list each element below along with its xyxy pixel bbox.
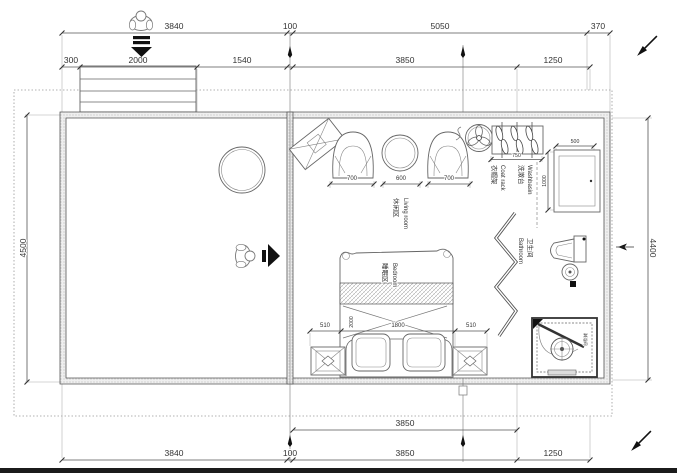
dim-b2-1250: 1250 bbox=[544, 448, 563, 458]
bedroom-label-zh: 睡眠区 bbox=[381, 263, 389, 283]
floor-drain-icon bbox=[562, 264, 578, 280]
entry-marker bbox=[129, 11, 152, 57]
page-bottom-edge bbox=[0, 468, 677, 473]
dim-bed-510-right: 510 bbox=[466, 323, 477, 329]
dim-top-3840: 3840 bbox=[165, 21, 184, 31]
dim-bed-510-left: 510 bbox=[320, 323, 331, 329]
person-icon bbox=[129, 11, 152, 31]
person-icon bbox=[236, 244, 256, 267]
bathroom-label-zh: 卫生间 bbox=[526, 238, 535, 258]
left-room bbox=[219, 147, 280, 268]
floor-plan-canvas: 3840 100 5050 370 300 2000 1540 3850 125… bbox=[0, 0, 677, 473]
dim-top2-1540: 1540 bbox=[233, 55, 252, 65]
dim-b1-3850: 3850 bbox=[396, 418, 415, 428]
coffee-table-icon bbox=[382, 135, 418, 171]
washbasin-icon bbox=[554, 150, 600, 212]
section-lines bbox=[288, 33, 467, 462]
dim-coatrack-750: 750 bbox=[512, 153, 521, 159]
toilet-icon bbox=[551, 236, 587, 262]
pen-icon bbox=[629, 429, 653, 453]
arrow-right-icon bbox=[262, 244, 280, 267]
dim-b2-100: 100 bbox=[283, 448, 297, 458]
section-marker-icon bbox=[288, 46, 292, 58]
armchair-icon bbox=[333, 132, 374, 178]
dim-table-600: 600 bbox=[396, 176, 407, 182]
dim-top-5050: 5050 bbox=[431, 21, 450, 31]
dim-top-100: 100 bbox=[283, 21, 297, 31]
armchair-icon bbox=[428, 132, 469, 178]
dim-b2-3850: 3850 bbox=[396, 448, 415, 458]
dim-chair-700: 700 bbox=[347, 176, 358, 182]
dimensions-bottom: 3850 3840 100 3850 1250 bbox=[60, 418, 593, 463]
section-marker-icon bbox=[461, 46, 465, 58]
coat-rack: 750 衣帽架 Coat rack bbox=[489, 122, 545, 192]
bathroom-label-en: Bathroom bbox=[517, 238, 523, 264]
bedroom: 2000 睡眠区 Bedroom 510 1800 510 bbox=[308, 249, 490, 377]
dim-top2-1250: 1250 bbox=[544, 55, 563, 65]
bedside-table-icon bbox=[453, 347, 487, 375]
dim-top2-300: 300 bbox=[64, 55, 78, 65]
dim-top-370: 370 bbox=[591, 21, 605, 31]
dim-right-4400: 4400 bbox=[648, 239, 658, 258]
dim-washbasin-500: 500 bbox=[571, 139, 580, 145]
round-table-icon bbox=[219, 147, 265, 193]
living-room: 700 600 700 休闲区 Living room bbox=[289, 118, 492, 229]
pen-icon bbox=[635, 34, 659, 58]
floor-plan-drawing: 3840 100 5050 370 300 2000 1540 3850 125… bbox=[0, 0, 677, 473]
shower-label-zh: 淋浴间 bbox=[582, 333, 589, 346]
dim-left-4500: 4500 bbox=[18, 238, 28, 257]
bedroom-label-en: Bedroom bbox=[391, 263, 397, 287]
dimension-left: 4500 bbox=[18, 113, 30, 385]
washbasin-label-zh: 洗漱台 bbox=[517, 165, 526, 185]
coat-rack-label-zh: 衣帽架 bbox=[490, 165, 499, 185]
dim-bed-1800: 1800 bbox=[391, 323, 405, 329]
shower-icon: 淋浴间 bbox=[532, 318, 597, 377]
dim-top2-2000: 2000 bbox=[129, 55, 148, 65]
bedside-table-icon bbox=[311, 347, 345, 375]
dim-top2-3850: 3850 bbox=[396, 55, 415, 65]
dimension-right: 4400 bbox=[616, 116, 658, 383]
dim-b2-3840: 3840 bbox=[165, 448, 184, 458]
living-room-label-en: Living room bbox=[402, 198, 408, 229]
washbasin-label-en: Washbasin bbox=[526, 165, 532, 194]
dim-bed-2000: 2000 bbox=[349, 316, 355, 328]
pillow-icon bbox=[403, 334, 445, 371]
arrow-down-icon bbox=[131, 36, 152, 57]
bathroom: Bathroom 卫生间 淋浴间 bbox=[496, 213, 597, 377]
section-marker-icon bbox=[461, 435, 465, 447]
drain-box bbox=[570, 281, 576, 287]
dim-washbasin-1000: 1000 bbox=[542, 175, 548, 187]
entry-steps bbox=[80, 66, 196, 112]
coat-rack-label-en: Coat rack bbox=[499, 165, 505, 192]
dim-chair2-700: 700 bbox=[444, 176, 455, 182]
fan-icon bbox=[466, 125, 493, 152]
living-room-label-zh: 休闲区 bbox=[392, 198, 401, 218]
section-marker-icon bbox=[288, 435, 292, 447]
